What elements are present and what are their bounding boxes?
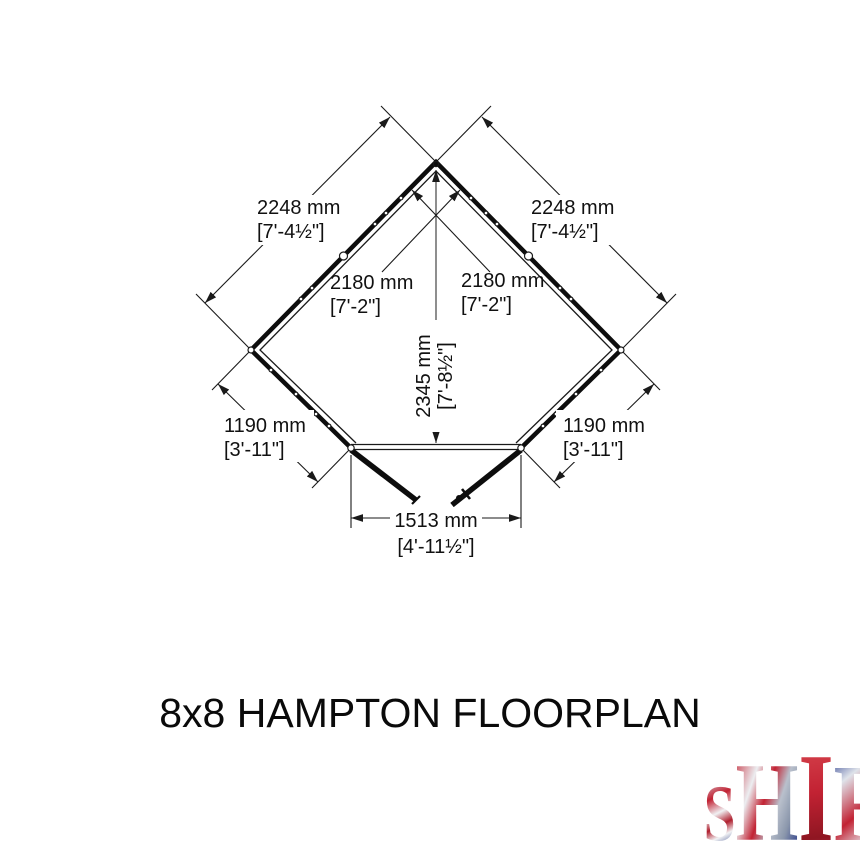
label-depth-mm: 2345 mm [413,334,435,417]
label-interior-right-imperial: [7'-2"] [461,294,512,316]
label-right-wall-imperial: [7'-4½"] [531,221,599,243]
label-front-left-mm: 1190 mm [224,415,306,437]
page-title: 8x8 HAMPTON FLOORPLAN [0,690,860,737]
door-knob-right [456,495,462,501]
brand-wordmark: SHIRE [704,736,860,860]
brand-logo: SHIRE BUILT AROUND OUR REPUTATION [614,736,846,860]
page: 2248 mm [7'-4½"] 2248 mm [7'-4½"] 2180 m… [0,0,860,860]
label-left-wall-mm: 2248 mm [257,197,340,219]
brand-letter: S [704,774,736,854]
label-front-right-mm: 1190 mm [563,415,645,437]
label-door-opening-mm: 1513 mm [394,510,477,532]
brand-letter: I [798,736,833,860]
door-leaf-left [351,450,416,500]
brand-letter: H [736,747,799,859]
label-depth: 2345 mm [7'-8½"] [413,334,457,417]
label-depth-imperial: [7'-8½"] [435,342,457,410]
label-front-right-imperial: [3'-11"] [563,439,624,461]
label-interior-right-mm: 2180 mm [461,270,544,292]
floorplan-drawing: 2248 mm [7'-4½"] 2248 mm [7'-4½"] 2180 m… [0,0,860,640]
label-interior-left-mm: 2180 mm [330,272,413,294]
brand-letter: R [834,748,860,858]
label-interior-left-imperial: [7'-2"] [330,296,381,318]
open-doors [351,450,521,505]
label-front-left-imperial: [3'-11"] [224,439,285,461]
label-right-wall-mm: 2248 mm [531,197,614,219]
dimension-labels: 2248 mm [7'-4½"] 2248 mm [7'-4½"] 2180 m… [224,197,645,558]
door-leaf-right [452,450,521,505]
label-left-wall-imperial: [7'-4½"] [257,221,325,243]
label-door-opening-imperial: [4'-11½"] [397,536,474,558]
